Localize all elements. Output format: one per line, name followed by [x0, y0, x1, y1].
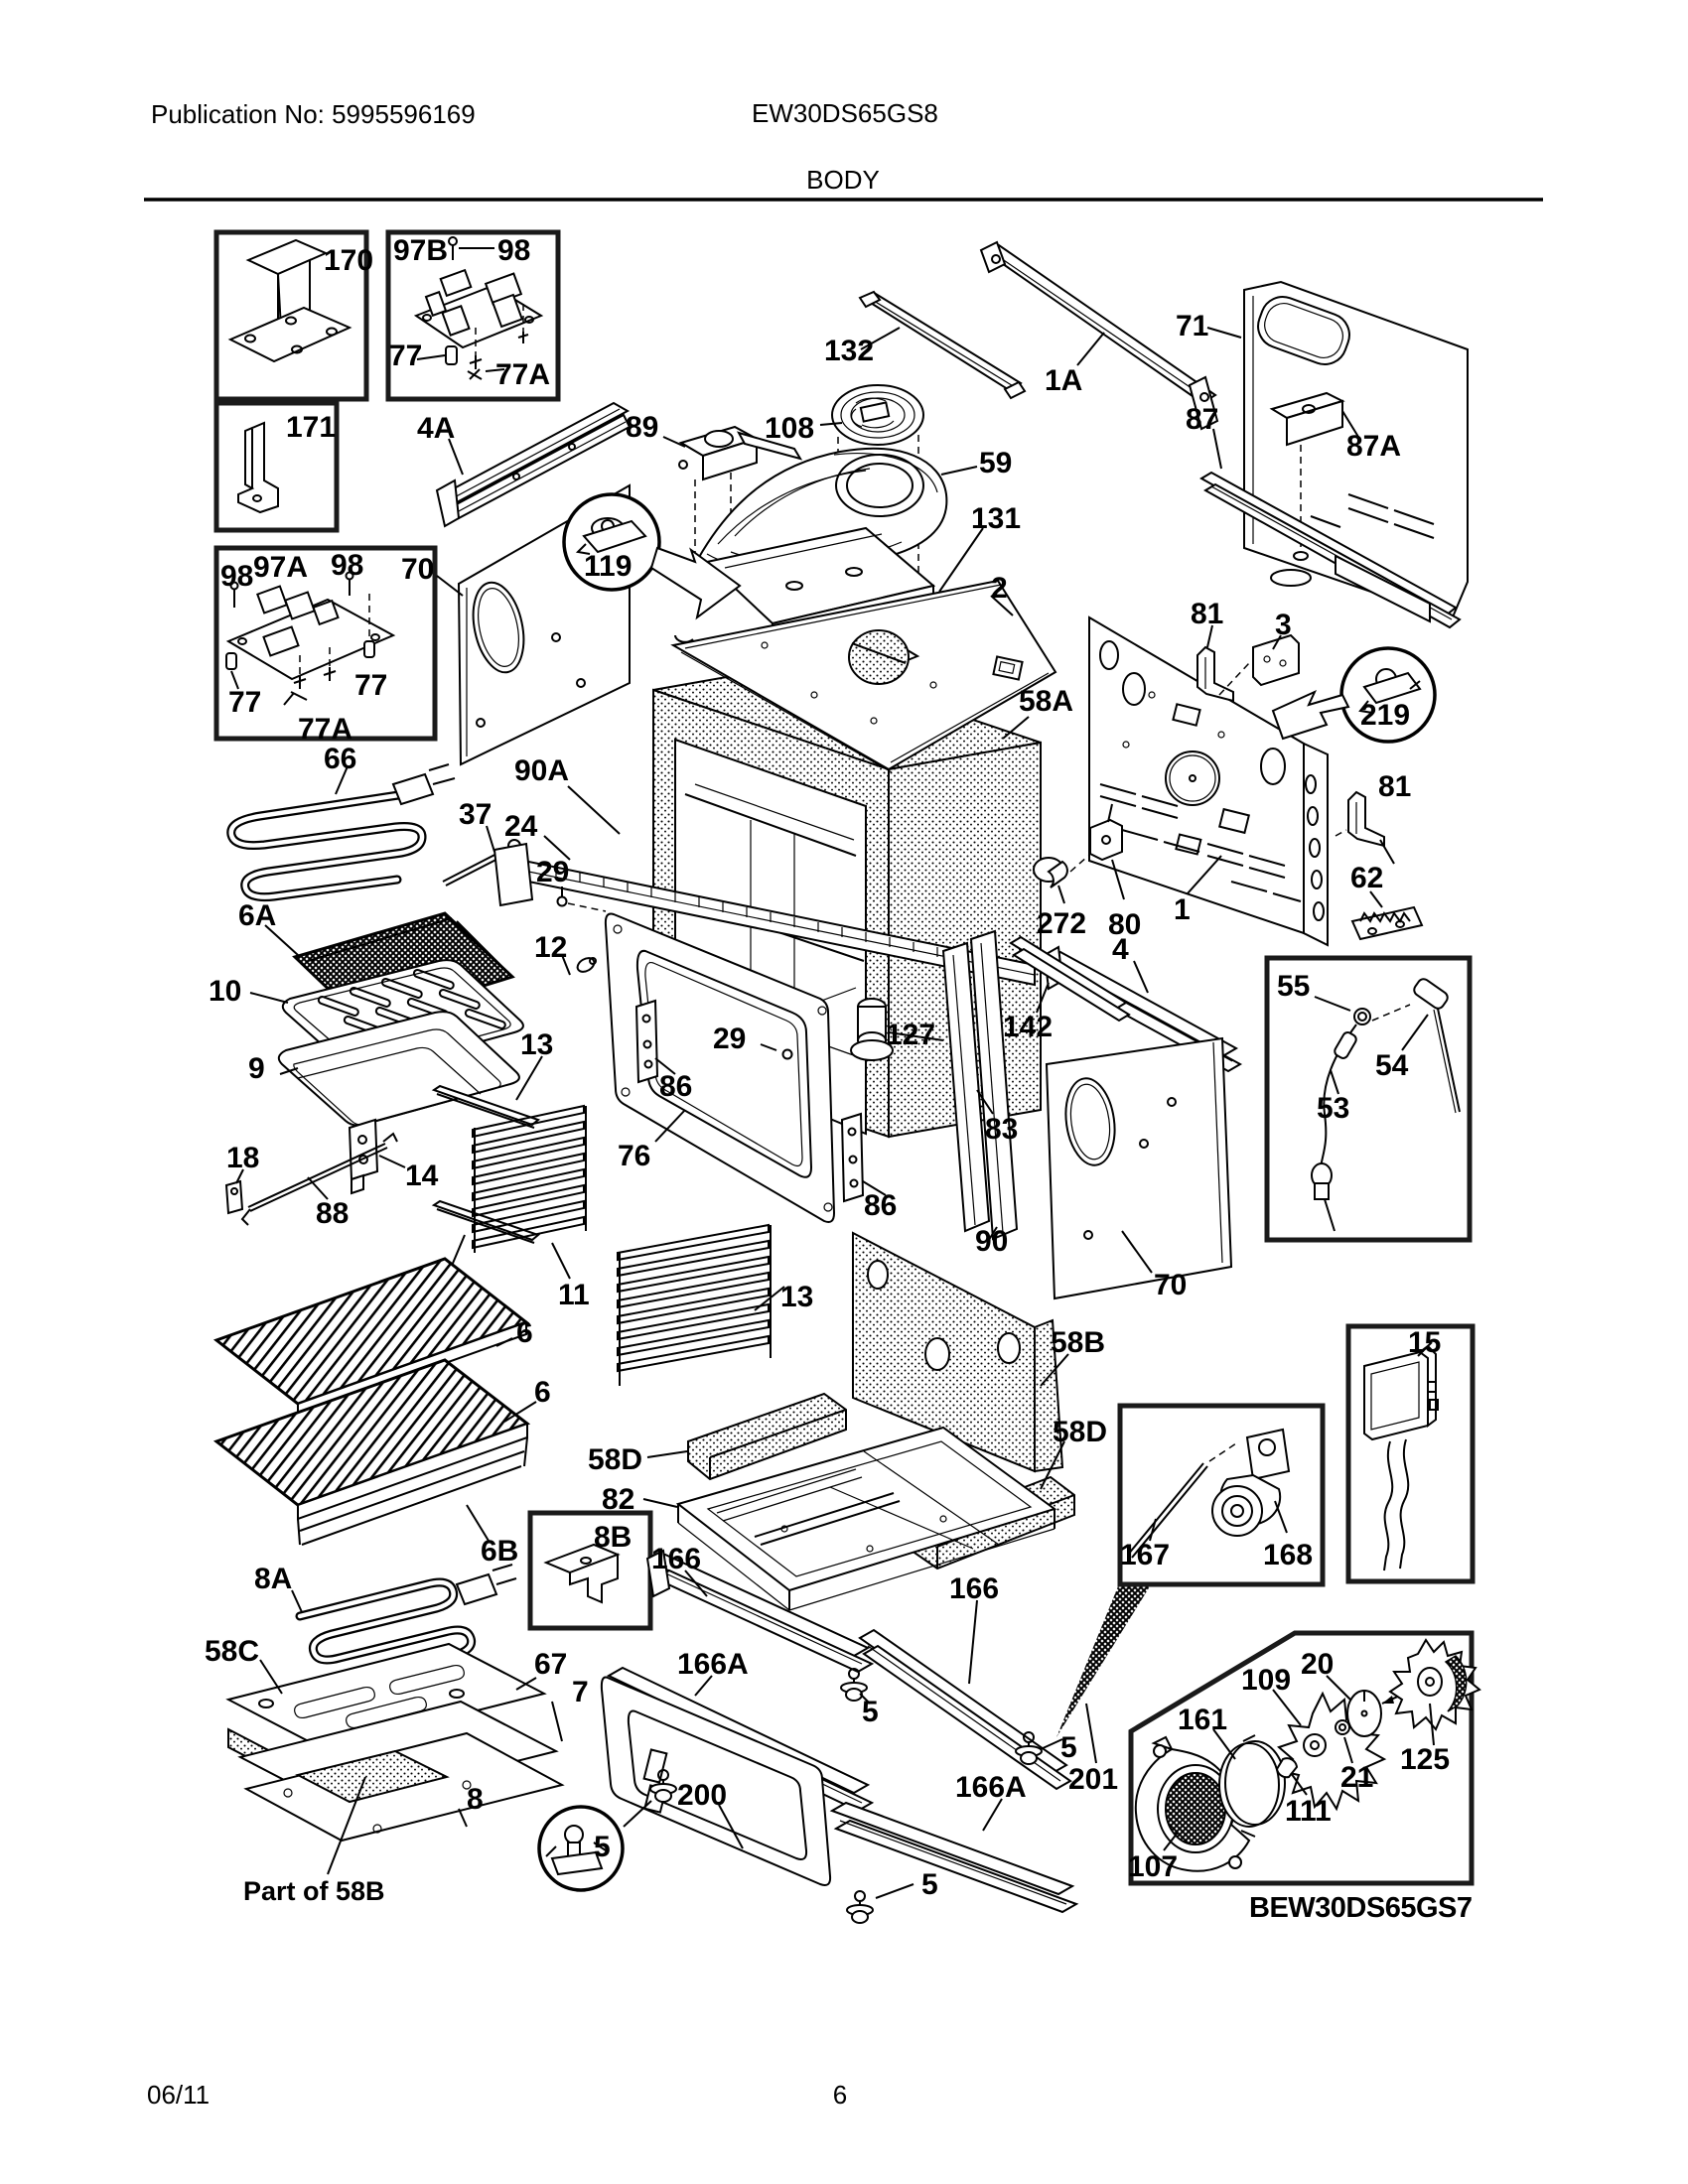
svg-text:58A: 58A — [1019, 685, 1073, 718]
svg-text:6B: 6B — [481, 1535, 518, 1568]
svg-text:8B: 8B — [594, 1521, 632, 1554]
svg-text:98: 98 — [331, 549, 363, 582]
svg-text:90A: 90A — [514, 754, 569, 787]
svg-text:55: 55 — [1277, 970, 1310, 1003]
svg-text:87A: 87A — [1346, 430, 1401, 463]
svg-text:58C: 58C — [205, 1635, 259, 1668]
svg-text:54: 54 — [1375, 1049, 1409, 1082]
svg-text:12: 12 — [534, 931, 567, 964]
svg-text:BODY: BODY — [806, 165, 880, 195]
svg-text:166: 166 — [949, 1572, 999, 1605]
svg-text:8: 8 — [467, 1783, 484, 1816]
svg-text:13: 13 — [780, 1281, 813, 1313]
svg-text:3: 3 — [1275, 609, 1292, 641]
svg-text:142: 142 — [1003, 1011, 1053, 1043]
svg-text:67: 67 — [534, 1648, 567, 1681]
svg-text:1: 1 — [1174, 893, 1191, 926]
svg-text:125: 125 — [1400, 1743, 1450, 1776]
svg-text:10: 10 — [209, 975, 241, 1008]
svg-text:5: 5 — [862, 1696, 879, 1728]
svg-text:88: 88 — [316, 1197, 349, 1230]
svg-text:6: 6 — [516, 1316, 533, 1349]
svg-text:83: 83 — [985, 1113, 1018, 1146]
svg-text:167: 167 — [1120, 1539, 1170, 1571]
svg-text:15: 15 — [1408, 1326, 1441, 1359]
svg-text:6A: 6A — [238, 899, 276, 932]
svg-text:29: 29 — [713, 1023, 746, 1055]
svg-text:Part of 58B: Part of 58B — [243, 1876, 385, 1906]
svg-text:Publication No: 5995596169: Publication No: 5995596169 — [151, 99, 476, 129]
svg-text:6: 6 — [833, 2080, 847, 2110]
svg-text:6: 6 — [534, 1376, 551, 1409]
svg-text:11: 11 — [558, 1279, 590, 1311]
svg-text:86: 86 — [864, 1189, 897, 1222]
svg-text:53: 53 — [1317, 1092, 1349, 1125]
svg-text:06/11: 06/11 — [147, 2080, 210, 2110]
svg-text:8A: 8A — [254, 1563, 292, 1595]
svg-text:127: 127 — [886, 1019, 935, 1051]
svg-text:81: 81 — [1378, 770, 1411, 803]
svg-text:166A: 166A — [677, 1648, 749, 1681]
svg-text:29: 29 — [536, 856, 569, 888]
svg-text:76: 76 — [618, 1140, 650, 1172]
svg-text:13: 13 — [520, 1028, 553, 1061]
svg-text:201: 201 — [1068, 1763, 1118, 1796]
svg-text:EW30DS65GS8: EW30DS65GS8 — [752, 98, 938, 128]
svg-text:77: 77 — [354, 669, 387, 702]
svg-text:97A: 97A — [253, 551, 308, 584]
svg-text:77: 77 — [389, 340, 422, 372]
svg-text:166A: 166A — [955, 1771, 1027, 1804]
svg-text:58D: 58D — [588, 1443, 642, 1476]
svg-text:77A: 77A — [298, 713, 352, 746]
svg-text:98: 98 — [497, 234, 530, 267]
svg-text:9: 9 — [248, 1052, 265, 1085]
svg-text:59: 59 — [979, 447, 1012, 479]
svg-text:70: 70 — [1154, 1269, 1187, 1301]
svg-text:14: 14 — [405, 1160, 439, 1192]
svg-text:111: 111 — [1285, 1795, 1332, 1828]
svg-text:77: 77 — [228, 686, 261, 719]
svg-text:5: 5 — [1060, 1731, 1077, 1764]
svg-text:20: 20 — [1301, 1648, 1334, 1681]
svg-text:97B: 97B — [393, 234, 448, 267]
svg-text:37: 37 — [459, 798, 492, 831]
svg-text:1A: 1A — [1045, 364, 1082, 397]
svg-text:70: 70 — [401, 553, 434, 586]
svg-text:5: 5 — [594, 1831, 611, 1863]
svg-text:81: 81 — [1191, 598, 1223, 630]
svg-text:108: 108 — [765, 412, 814, 445]
svg-text:87: 87 — [1186, 403, 1218, 436]
svg-text:109: 109 — [1241, 1664, 1291, 1697]
svg-text:BEW30DS65GS7: BEW30DS65GS7 — [1249, 1892, 1473, 1924]
svg-text:4: 4 — [1112, 933, 1129, 966]
svg-text:98: 98 — [220, 560, 253, 593]
svg-text:168: 168 — [1263, 1539, 1313, 1571]
svg-text:219: 219 — [1360, 699, 1410, 732]
svg-text:107: 107 — [1128, 1850, 1178, 1883]
svg-text:161: 161 — [1178, 1704, 1227, 1736]
svg-text:62: 62 — [1350, 862, 1383, 894]
svg-text:7: 7 — [572, 1676, 589, 1708]
svg-text:89: 89 — [626, 411, 658, 444]
svg-text:272: 272 — [1037, 907, 1086, 940]
svg-text:71: 71 — [1176, 310, 1208, 342]
svg-text:200: 200 — [677, 1779, 727, 1812]
svg-text:170: 170 — [324, 244, 373, 277]
svg-text:131: 131 — [971, 502, 1021, 535]
svg-text:171: 171 — [286, 411, 336, 444]
svg-text:58D: 58D — [1053, 1416, 1107, 1448]
svg-text:166: 166 — [651, 1543, 701, 1575]
svg-text:119: 119 — [584, 550, 632, 583]
svg-text:2: 2 — [991, 572, 1008, 605]
svg-text:86: 86 — [659, 1070, 692, 1103]
svg-text:90: 90 — [975, 1225, 1008, 1258]
svg-text:24: 24 — [504, 810, 538, 843]
svg-text:58B: 58B — [1051, 1326, 1105, 1359]
svg-text:77A: 77A — [495, 358, 550, 391]
svg-text:132: 132 — [824, 335, 874, 367]
svg-text:21: 21 — [1340, 1761, 1373, 1794]
svg-text:5: 5 — [921, 1868, 938, 1901]
svg-text:66: 66 — [324, 743, 356, 775]
svg-text:4A: 4A — [417, 412, 455, 445]
svg-text:18: 18 — [226, 1142, 259, 1174]
